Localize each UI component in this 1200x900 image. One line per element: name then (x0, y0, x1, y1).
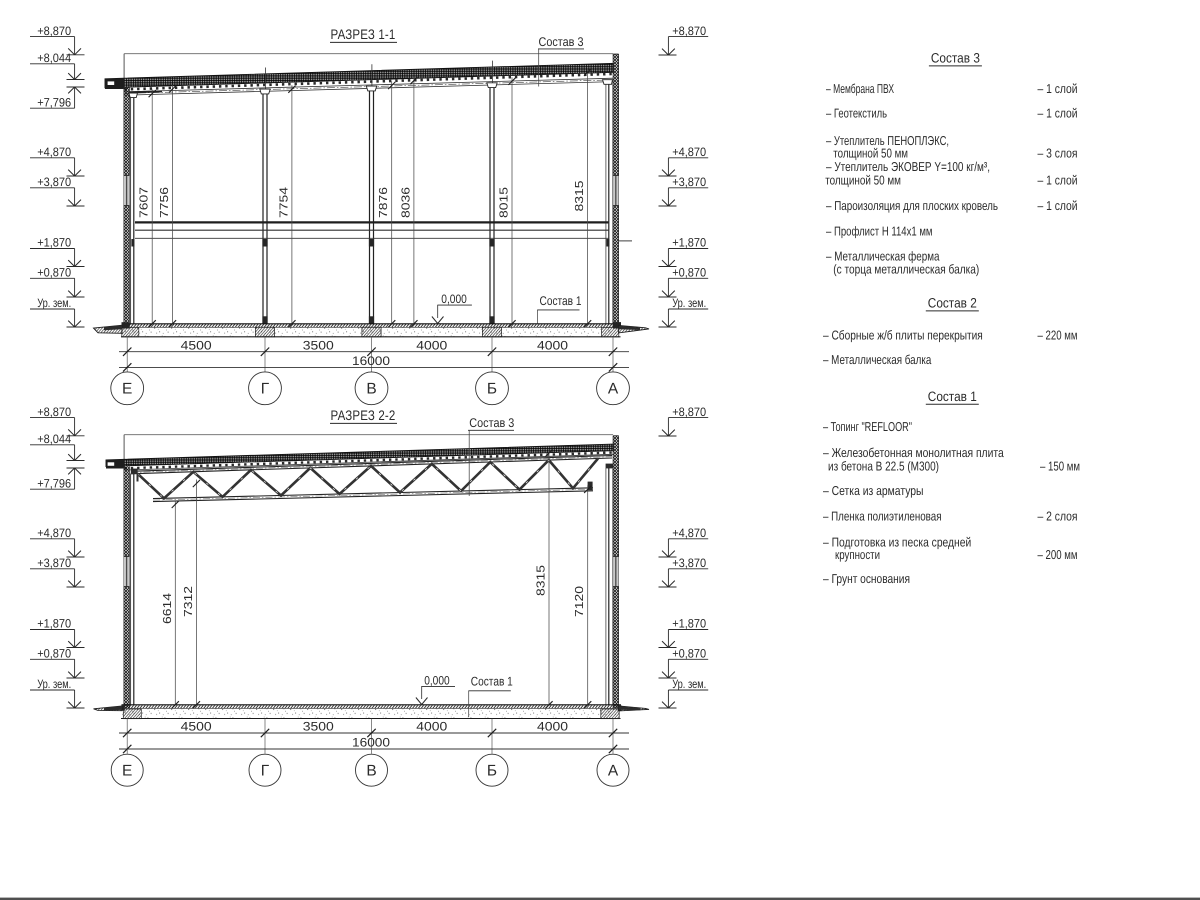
svg-text:Г: Г (261, 762, 270, 779)
svg-text:(с торца металлическая балка): (с торца металлическая балка) (833, 262, 979, 277)
svg-text:+4,870: +4,870 (37, 145, 71, 159)
svg-text:В: В (366, 381, 376, 398)
svg-text:А: А (608, 762, 619, 779)
svg-text:+1,870: +1,870 (37, 236, 71, 250)
svg-text:+4,870: +4,870 (672, 526, 706, 540)
svg-text:Состав 1: Состав 1 (540, 294, 582, 308)
svg-text:0,000: 0,000 (441, 292, 467, 306)
svg-text:+8,044: +8,044 (37, 432, 71, 446)
svg-text:+3,870: +3,870 (37, 175, 71, 189)
svg-text:Ур. зем.: Ур. зем. (672, 677, 706, 691)
svg-text:Ур. зем.: Ур. зем. (672, 296, 706, 310)
svg-text:16000: 16000 (352, 354, 390, 368)
svg-text:4500: 4500 (181, 338, 212, 352)
svg-text:4000: 4000 (416, 338, 447, 352)
svg-text:4000: 4000 (537, 338, 568, 352)
svg-text:РАЗРЕЗ 1-1: РАЗРЕЗ 1-1 (331, 27, 396, 42)
svg-text:+0,870: +0,870 (37, 647, 71, 661)
svg-text:– Пленка полиэтиленовая: – Пленка полиэтиленовая (823, 509, 942, 524)
svg-text:– Металлическая балка: – Металлическая балка (823, 352, 932, 367)
svg-text:+0,870: +0,870 (37, 266, 71, 280)
svg-text:+8,870: +8,870 (672, 405, 706, 419)
svg-text:7607: 7607 (138, 187, 151, 218)
svg-text:А: А (608, 381, 619, 398)
svg-text:3500: 3500 (303, 338, 334, 352)
svg-text:– Пароизоляция для плоских кро: – Пароизоляция для плоских кровель (826, 198, 998, 213)
svg-text:+1,870: +1,870 (672, 617, 706, 631)
svg-text:+4,870: +4,870 (37, 526, 71, 540)
svg-text:+8,870: +8,870 (37, 24, 71, 38)
svg-text:– Профлист Н 114х1 мм: – Профлист Н 114х1 мм (826, 224, 933, 239)
svg-text:Состав 3: Состав 3 (469, 416, 514, 430)
svg-text:В: В (366, 762, 376, 779)
svg-text:– 150 мм: – 150 мм (1040, 458, 1080, 473)
svg-text:– Сборные ж/б плиты перекрытия: – Сборные ж/б плиты перекрытия (823, 328, 983, 343)
svg-text:+8,870: +8,870 (672, 24, 706, 38)
svg-text:Е: Е (122, 762, 132, 779)
svg-text:– 1 слой: – 1 слой (1038, 198, 1078, 213)
svg-text:Состав 1: Состав 1 (928, 389, 977, 404)
svg-text:– 1 слой: – 1 слой (1038, 81, 1078, 96)
svg-text:– 1 слой: – 1 слой (1038, 172, 1078, 187)
svg-text:– 2 слоя: – 2 слоя (1038, 509, 1078, 524)
svg-text:7754: 7754 (277, 186, 290, 218)
svg-text:– Геотекстиль: – Геотекстиль (826, 106, 887, 121)
svg-text:16000: 16000 (352, 736, 390, 750)
svg-text:+3,870: +3,870 (672, 175, 706, 189)
svg-text:+7,796: +7,796 (37, 476, 71, 490)
svg-text:– 220 мм: – 220 мм (1038, 328, 1078, 343)
svg-text:+0,870: +0,870 (672, 647, 706, 661)
svg-text:Б: Б (487, 762, 497, 779)
svg-text:+7,796: +7,796 (37, 95, 71, 109)
svg-text:– Топинг "REFLOOR": – Топинг "REFLOOR" (823, 419, 912, 434)
svg-text:– Грунт основания: – Грунт основания (823, 571, 910, 586)
svg-text:Ур. зем.: Ур. зем. (37, 296, 71, 310)
svg-text:0,000: 0,000 (424, 674, 450, 688)
svg-text:+8,044: +8,044 (37, 51, 71, 65)
svg-text:+1,870: +1,870 (37, 617, 71, 631)
svg-text:из бетона В 22.5 (М300): из бетона В 22.5 (М300) (828, 458, 939, 473)
svg-text:7120: 7120 (573, 586, 586, 617)
svg-text:7312: 7312 (182, 586, 195, 617)
svg-text:толщиной 50 мм: толщиной 50 мм (825, 172, 901, 187)
svg-text:Е: Е (122, 381, 132, 398)
svg-text:7756: 7756 (158, 187, 171, 218)
svg-text:Состав 2: Состав 2 (928, 296, 977, 311)
svg-text:3500: 3500 (303, 720, 334, 734)
svg-text:крупности: крупности (835, 547, 880, 562)
svg-text:– Мембрана ПВХ: – Мембрана ПВХ (826, 81, 894, 96)
svg-text:4000: 4000 (416, 720, 447, 734)
svg-text:– 200 мм: – 200 мм (1038, 547, 1078, 562)
svg-text:Состав 3: Состав 3 (539, 35, 584, 49)
svg-text:7876: 7876 (377, 187, 390, 218)
svg-text:+3,870: +3,870 (37, 556, 71, 570)
svg-text:4500: 4500 (181, 720, 212, 734)
svg-text:+0,870: +0,870 (672, 266, 706, 280)
svg-text:6614: 6614 (161, 592, 174, 624)
svg-text:– 1 слой: – 1 слой (1038, 106, 1078, 121)
svg-text:4000: 4000 (537, 720, 568, 734)
svg-text:Г: Г (261, 381, 270, 398)
svg-text:Б: Б (487, 381, 497, 398)
svg-text:РАЗРЕЗ 2-2: РАЗРЕЗ 2-2 (331, 408, 396, 423)
svg-text:+4,870: +4,870 (672, 145, 706, 159)
svg-text:8036: 8036 (399, 187, 412, 218)
svg-text:Состав 1: Состав 1 (471, 674, 513, 688)
svg-text:8015: 8015 (498, 187, 511, 218)
svg-text:Состав 3: Состав 3 (931, 51, 980, 66)
svg-text:+8,870: +8,870 (37, 405, 71, 419)
svg-text:+1,870: +1,870 (672, 236, 706, 250)
svg-text:– Сетка из арматуры: – Сетка из арматуры (823, 483, 924, 498)
svg-text:+3,870: +3,870 (672, 556, 706, 570)
svg-text:– 3 слоя: – 3 слоя (1038, 145, 1078, 160)
svg-text:Ур. зем.: Ур. зем. (37, 677, 71, 691)
svg-text:8315: 8315 (573, 181, 586, 212)
svg-text:8315: 8315 (535, 565, 548, 596)
